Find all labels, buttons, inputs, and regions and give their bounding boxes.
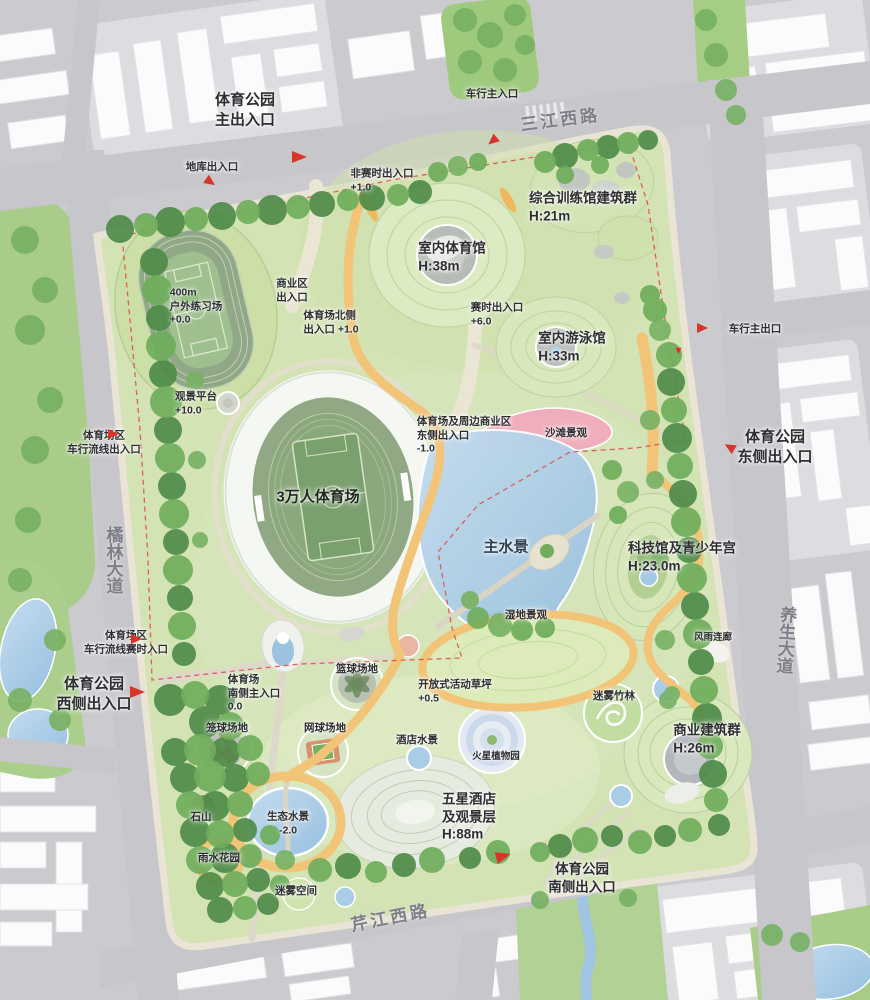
label-park-east-entrance: 体育公园 东侧出入口 xyxy=(737,428,812,467)
label-viewing-platform: 观景平台 +10.0 xyxy=(175,390,217,417)
label-stadium-biz-east-entrance: 体育场及周边商业区 东侧出入口 -1.0 xyxy=(417,416,512,457)
label-commercial-entrance: 商业区 出入口 xyxy=(276,277,308,304)
entrance-arrow-icon xyxy=(697,323,708,333)
label-offseason-entrance: 非赛时出入口 +1.0 xyxy=(351,167,414,194)
label-park-south-entrance: 体育公园 南侧出入口 xyxy=(548,860,616,895)
small-pond-3 xyxy=(335,887,355,907)
label-beach: 沙滩景观 xyxy=(545,427,587,441)
entrance-arrow-icon xyxy=(108,429,119,439)
label-rain-garden: 雨水花园 xyxy=(198,852,240,866)
label-mist-bamboo: 迷雾竹林 xyxy=(593,690,635,704)
label-hotel-water: 酒店水景 xyxy=(396,734,438,748)
road-label-yangsheng: 养生大道 xyxy=(774,605,796,674)
label-park-main-entrance: 体育公园 主出入口 xyxy=(215,91,275,130)
site-plan: 三江西路 橘林大道 养生大道 芹江西路 体育公园 主出入口 车行主入口 地库出入… xyxy=(0,0,870,1000)
label-cage-court: 笼球场地 xyxy=(206,722,248,736)
label-rain-corridor: 风雨连廊 xyxy=(694,632,732,644)
label-stadium-north-entrance: 体育场北侧 出入口 +1.0 xyxy=(303,309,358,336)
label-eco-water: 生态水景 -2.0 xyxy=(267,810,309,837)
label-mars-garden: 火星植物园 xyxy=(472,751,520,763)
entrance-arrow-icon xyxy=(292,151,307,163)
label-veh-main-entrance: 车行主入口 xyxy=(466,88,519,102)
label-basketball-court: 篮球场地 xyxy=(336,663,378,677)
entrance-arrow-icon xyxy=(130,686,145,698)
label-stadium-veh-entrance: 体育场区 车行流线出入口 xyxy=(67,429,141,456)
label-garage-entrance: 地库出入口 xyxy=(186,161,239,175)
label-five-star-hotel: 五星酒店 及观景层 H:88m xyxy=(442,791,496,844)
label-wetland: 湿地景观 xyxy=(505,609,547,623)
label-commercial-cluster: 商业建筑群 H:26m xyxy=(673,721,741,756)
road-label-julin: 橘林大道 xyxy=(105,526,122,594)
label-park-west-entrance: 体育公园 西侧出入口 xyxy=(56,675,131,714)
label-veh-main-exit: 车行主出口 xyxy=(729,323,782,337)
label-natatorium: 室内游泳馆 H:33m xyxy=(538,329,606,364)
entrance-arrow-icon xyxy=(676,348,682,355)
hotel-water-pond xyxy=(407,746,431,770)
label-training-complex: 综合训练馆建筑群 H:21m xyxy=(529,189,637,224)
label-stadium-south-entrance: 体育场 南侧主入口 0.0 xyxy=(228,674,281,715)
label-stadium-veh-games-entrance: 体育场区 车行流线赛时入口 xyxy=(84,629,168,656)
label-tennis-court: 网球场地 xyxy=(304,722,346,736)
label-mist-space: 迷雾空间 xyxy=(275,885,317,899)
label-indoor-gym: 室内体育馆 H:38m xyxy=(418,239,486,274)
label-main-water: 主水景 xyxy=(483,537,528,557)
label-outdoor-track: 400m 户外练习场 +0.0 xyxy=(170,287,223,328)
label-games-entrance: 赛时出入口 +6.0 xyxy=(471,301,524,328)
entrance-arrow-icon xyxy=(131,634,142,644)
label-open-lawn: 开放式活动草坪 +0.5 xyxy=(418,678,492,705)
viewing-platform-center xyxy=(223,398,233,408)
label-stone-hill: 石山 xyxy=(191,811,212,825)
label-stadium: 3万人体育场 xyxy=(276,487,359,507)
small-pond-2 xyxy=(610,785,632,807)
label-science-youth: 科技馆及青少年宫 H:23.0m xyxy=(628,539,736,574)
site-plan-svg xyxy=(0,0,870,1000)
